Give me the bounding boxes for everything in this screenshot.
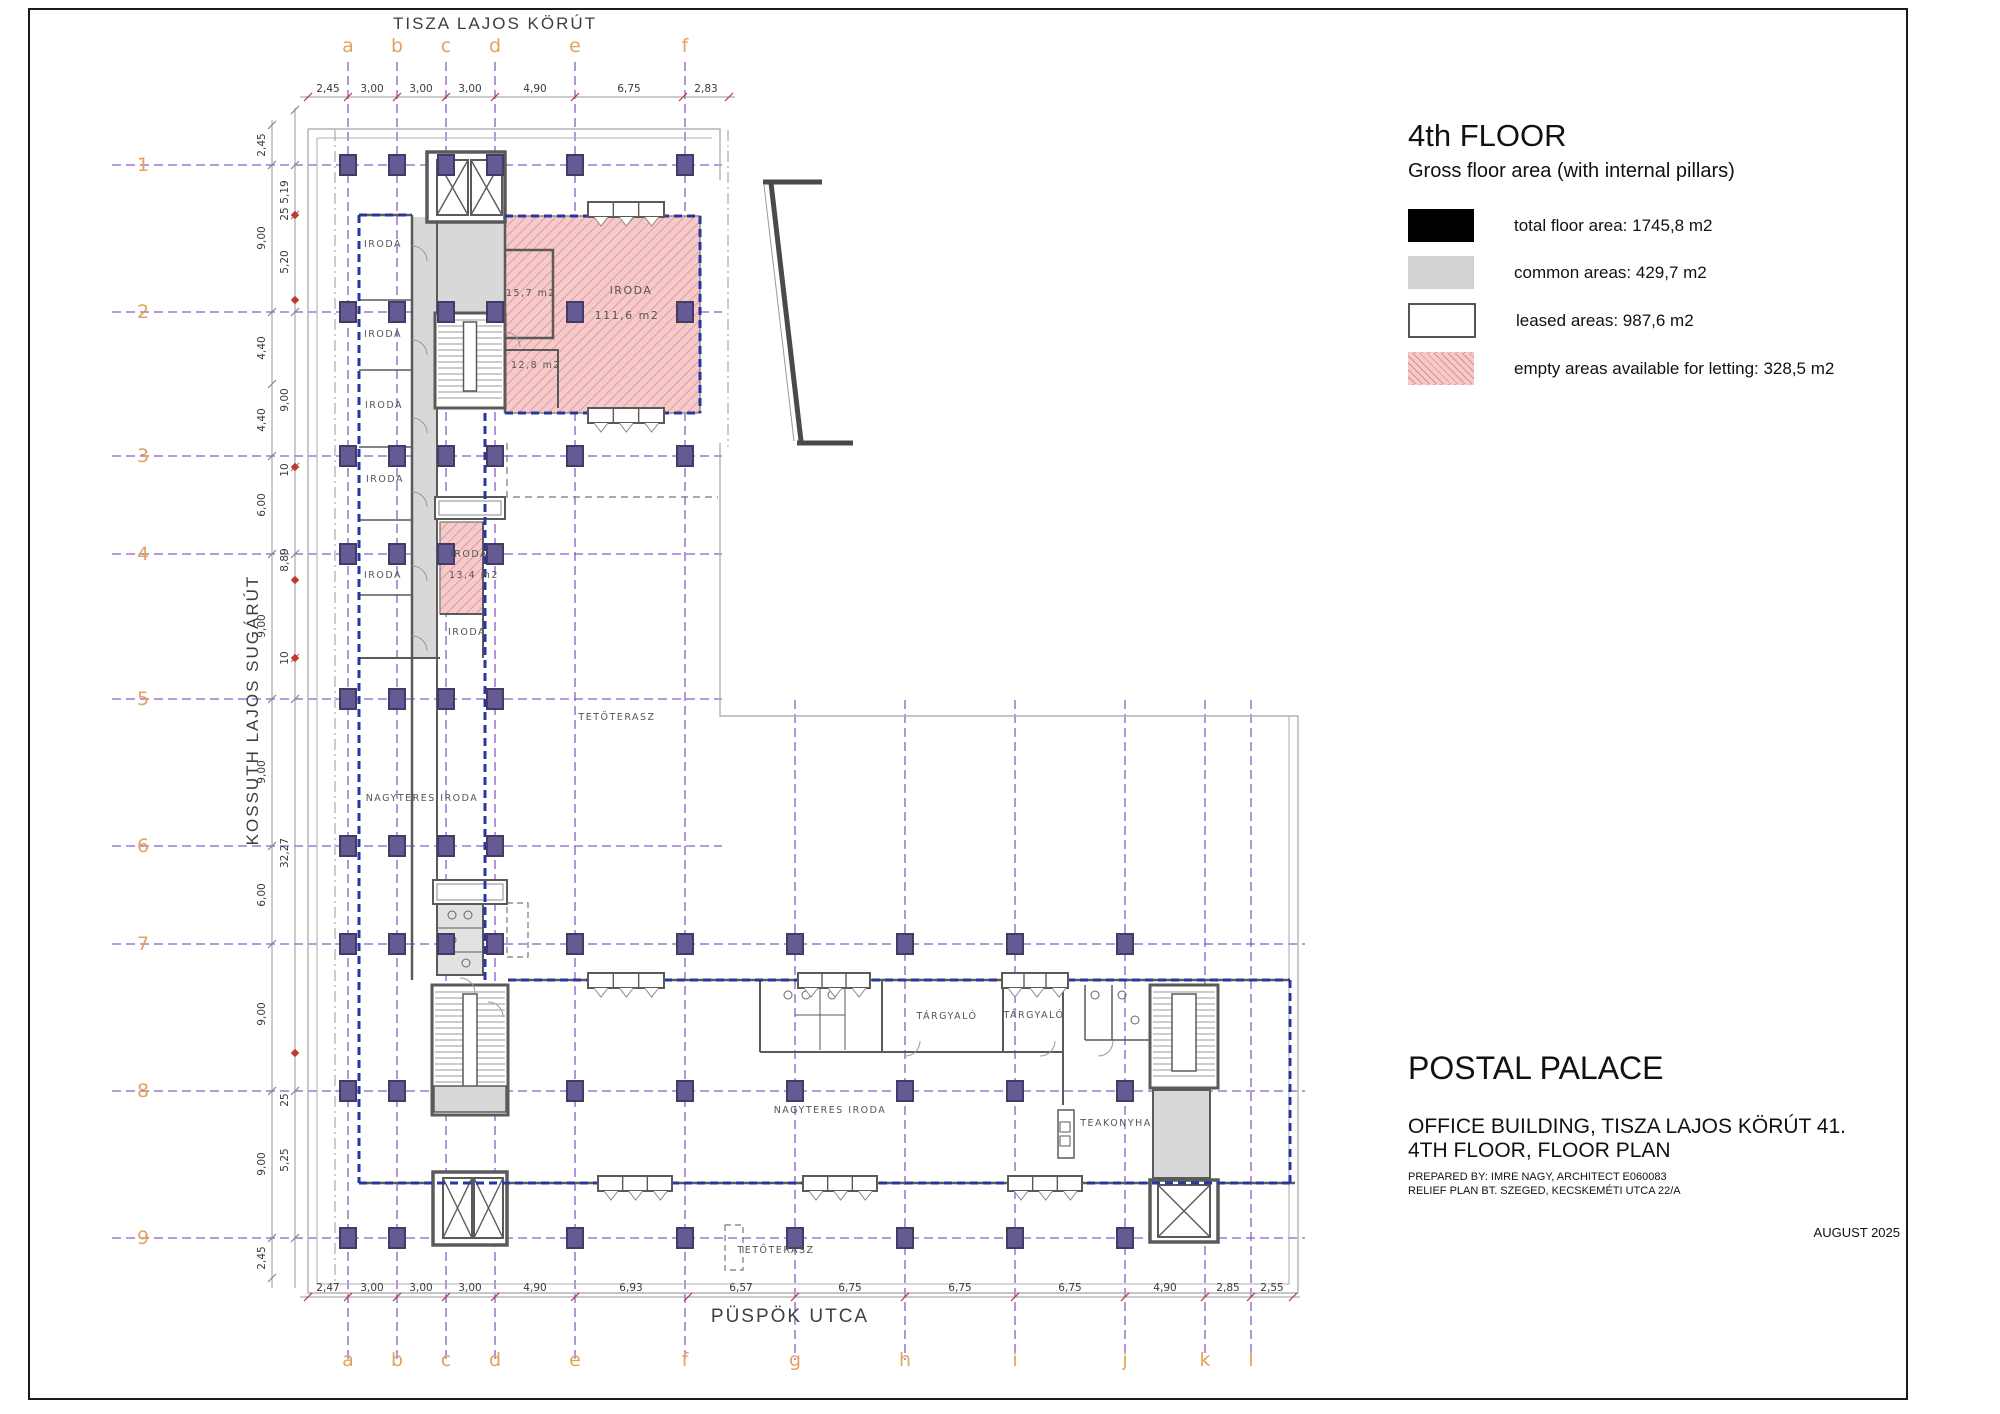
street-label-left: KOSSUTH LAJOS SUGÁRÚT: [243, 565, 263, 855]
floor-title: 4th FLOOR: [1408, 118, 1878, 154]
dimension-text: 6,75: [617, 83, 640, 95]
dimension-text: 6,75: [1058, 1282, 1081, 1294]
common-fill-corridor: [412, 313, 437, 658]
pillar-a1: [340, 155, 356, 175]
room-label: IRODA: [364, 570, 402, 581]
pillar-b2: [389, 302, 405, 322]
dimension-text: 3,00: [458, 83, 481, 95]
grid-letter-top-e: e: [569, 35, 581, 57]
red-marker: [291, 1049, 299, 1057]
room-label: 15,7 m2: [506, 288, 556, 299]
legend-swatch-empty: [1408, 352, 1474, 385]
dimension-text: 9,00: [256, 1152, 268, 1175]
dimension-text: 3,00: [360, 1282, 383, 1294]
grid-number-9: 9: [137, 1227, 149, 1249]
pillar-b4: [389, 544, 405, 564]
room-label: TETŐTERASZ: [577, 712, 655, 723]
room-label: TÁRGYALÓ: [1002, 1009, 1064, 1021]
dimension-text: 6,75: [838, 1282, 861, 1294]
legend-row-leased: leased areas: 987,6 m2: [1408, 303, 1878, 338]
grid-number-4: 4: [137, 543, 149, 565]
room-label: IRODA: [450, 549, 488, 560]
pillar-d7: [487, 934, 503, 954]
grid-letter-bottom-b: b: [391, 1349, 403, 1371]
dimension-text: 6,57: [729, 1282, 752, 1294]
pillar-g8: [787, 1081, 803, 1101]
room-label: 111,6 m2: [595, 309, 660, 322]
prepared-by: PREPARED BY: IMRE NAGY, ARCHITECT E06008…: [1408, 1171, 1888, 1183]
common-fill-lobby: [412, 217, 505, 313]
terrace-outlines: [507, 443, 743, 1270]
dimension-text: 6,00: [256, 493, 268, 516]
pillar-i9: [1007, 1228, 1023, 1248]
dimension-text: 25: [279, 207, 291, 220]
dimension-text: 5,25: [279, 1148, 291, 1171]
pillar-h7: [897, 934, 913, 954]
pillar-a4: [340, 544, 356, 564]
dimension-text: 4,90: [523, 1282, 546, 1294]
room-label: NAGYTERES IRODA: [774, 1105, 887, 1116]
legend-label-total: total floor area: 1745,8 m2: [1514, 216, 1712, 236]
legend-label-common: common areas: 429,7 m2: [1514, 263, 1707, 283]
grid-number-5: 5: [137, 688, 149, 710]
grid-number-6: 6: [137, 835, 149, 857]
street-label-bottom: PÜSPÖK UTCA: [630, 1306, 950, 1328]
pillar-h8: [897, 1081, 913, 1101]
terrace-outline-mid: [507, 903, 528, 957]
dimension-text: 2,85: [1216, 1282, 1239, 1294]
dimension-text: 2,45: [256, 1246, 268, 1269]
dimension-text: 9,00: [256, 1002, 268, 1025]
pillar-b1: [389, 155, 405, 175]
dimension-text: 4,90: [523, 83, 546, 95]
grid-letter-top-c: c: [441, 35, 451, 57]
grid-letter-top-a: a: [342, 35, 354, 57]
dimension-text: 2,83: [694, 83, 717, 95]
pillar-i8: [1007, 1081, 1023, 1101]
legend-swatch-common: [1408, 256, 1474, 289]
dimension-text: 6,93: [619, 1282, 642, 1294]
grid-letter-bottom-a: a: [342, 1349, 354, 1371]
legend-row-total: total floor area: 1745,8 m2: [1408, 209, 1878, 242]
legend-label-empty: empty areas available for letting: 328,5…: [1514, 359, 1834, 379]
grid-letter-bottom-g: g: [789, 1349, 801, 1371]
grid-letter-top-f: f: [682, 35, 690, 57]
pillar-c3: [438, 446, 454, 466]
pillar-e7: [567, 934, 583, 954]
red-marker: [291, 576, 299, 584]
dimension-text: 6,75: [948, 1282, 971, 1294]
room-label: IRODA: [448, 627, 486, 638]
legend-label-leased: leased areas: 987,6 m2: [1516, 311, 1694, 331]
legend-block: 4th FLOOR Gross floor area (with interna…: [1408, 118, 1878, 399]
pillar-i7: [1007, 934, 1023, 954]
grid-number-7: 7: [137, 933, 149, 955]
grid-letter-bottom-j: j: [1121, 1349, 1127, 1371]
legend-row-empty: empty areas available for letting: 328,5…: [1408, 352, 1878, 385]
legend-swatch-total: [1408, 209, 1474, 242]
pillar-f9: [677, 1228, 693, 1248]
grid-number-2: 2: [137, 301, 149, 323]
dimension-text: 10: [279, 651, 291, 664]
grid-letter-top-b: b: [391, 35, 403, 57]
dimension-text: 10: [279, 463, 291, 476]
pillar-a5: [340, 689, 356, 709]
drawing-sheet: 2,453,003,003,004,906,752,832,473,003,00…: [0, 0, 2000, 1414]
pillar-f1: [677, 155, 693, 175]
grid-number-3: 3: [137, 445, 149, 467]
pillar-e1: [567, 155, 583, 175]
room-label: TETŐTERASZ: [736, 1245, 814, 1256]
project-line2: 4TH FLOOR, FLOOR PLAN: [1408, 1139, 1888, 1163]
room-label: TEAKONYHA: [1079, 1118, 1152, 1129]
project-name: POSTAL PALACE: [1408, 1050, 1888, 1087]
pillar-h9: [897, 1228, 913, 1248]
dimension-text: 25: [279, 1093, 291, 1106]
pillar-e8: [567, 1081, 583, 1101]
pillar-c6: [438, 836, 454, 856]
dimension-text: 2,55: [1260, 1282, 1283, 1294]
grid-letter-bottom-d: d: [489, 1349, 501, 1371]
pillar-c5: [438, 689, 454, 709]
pillar-b6: [389, 836, 405, 856]
pillar-c1: [438, 155, 454, 175]
pillar-f2: [677, 302, 693, 322]
dimension-text: 2,45: [316, 83, 339, 95]
red-marker: [291, 296, 299, 304]
legend-swatch-leased: [1408, 303, 1476, 338]
pillar-g7: [787, 934, 803, 954]
pillar-j8: [1117, 1081, 1133, 1101]
empty-area-small: [440, 522, 483, 614]
legend-row-common: common areas: 429,7 m2: [1408, 256, 1878, 289]
room-label: 13,4 m2: [449, 570, 499, 581]
grid-letter-bottom-f: f: [682, 1349, 690, 1371]
grid-letter-bottom-e: e: [569, 1349, 581, 1371]
pillar-j9: [1117, 1228, 1133, 1248]
room-label: IRODA: [610, 284, 653, 297]
grid-letter-bottom-i: i: [1012, 1349, 1017, 1371]
dimension-text: 9,00: [279, 388, 291, 411]
dimension-text: 3,00: [409, 1282, 432, 1294]
grid-letter-bottom-k: k: [1199, 1349, 1210, 1371]
grid-letter-bottom-h: h: [899, 1349, 911, 1371]
pillar-f8: [677, 1081, 693, 1101]
pillar-f3: [677, 446, 693, 466]
dimension-text: 3,00: [409, 83, 432, 95]
dimension-text: 4,40: [256, 408, 268, 431]
room-label: IRODA: [366, 474, 404, 485]
grid-letter-bottom-c: c: [441, 1349, 451, 1371]
dimension-text: 3,00: [458, 1282, 481, 1294]
pillar-a8: [340, 1081, 356, 1101]
pillar-b8: [389, 1081, 405, 1101]
pillar-d4: [487, 544, 503, 564]
grid-letter-top-d: d: [489, 35, 501, 57]
dimension-text: 8,89: [279, 548, 291, 571]
dimension-text: 2,45: [256, 133, 268, 156]
pillar-d1: [487, 155, 503, 175]
room-label: IRODA: [365, 400, 403, 411]
date-label: AUGUST 2025: [1700, 1225, 1900, 1240]
pillar-e3: [567, 446, 583, 466]
dimension-text: 5,19: [279, 180, 291, 203]
dimension-text: 4,40: [256, 336, 268, 359]
project-line1: OFFICE BUILDING, TISZA LAJOS KÖRÚT 41.: [1408, 1115, 1888, 1139]
pillar-b9: [389, 1228, 405, 1248]
pillar-a7: [340, 934, 356, 954]
common-fill-shaft: [1153, 1090, 1210, 1178]
pillar-d2: [487, 302, 503, 322]
pillar-c7: [438, 934, 454, 954]
dimension-text: 3,00: [360, 83, 383, 95]
pillar-a9: [340, 1228, 356, 1248]
room-label: IRODA: [364, 239, 402, 250]
dimension-text: 9,00: [256, 226, 268, 249]
pillar-e9: [567, 1228, 583, 1248]
dimension-text: 32,27: [279, 838, 291, 868]
floor-subtitle: Gross floor area (with internal pillars): [1408, 160, 1878, 183]
grid-number-1: 1: [137, 154, 149, 176]
relief-plan: RELIEF PLAN BT. SZEGED, KECSKEMÉTI UTCA …: [1408, 1185, 1888, 1197]
pillar-d6: [487, 836, 503, 856]
room-label: NAGYTERES IRODA: [366, 793, 479, 804]
dimension-text: 6,00: [256, 883, 268, 906]
neighbour-wall: [763, 182, 853, 443]
street-label-top: TISZA LAJOS KÖRÚT: [330, 14, 660, 34]
grid-letter-bottom-l: l: [1248, 1349, 1253, 1371]
pillar-f7: [677, 934, 693, 954]
pillar-b5: [389, 689, 405, 709]
pillar-a3: [340, 446, 356, 466]
project-title-block: POSTAL PALACE OFFICE BUILDING, TISZA LAJ…: [1408, 1050, 1888, 1197]
pillar-a2: [340, 302, 356, 322]
room-label: 12,8 m2: [511, 360, 561, 371]
pillar-b3: [389, 446, 405, 466]
room-label: IRODA: [364, 329, 402, 340]
dimension-text: 4,90: [1153, 1282, 1176, 1294]
pillar-d5: [487, 689, 503, 709]
pillar-j7: [1117, 934, 1133, 954]
pillar-b7: [389, 934, 405, 954]
grid-number-8: 8: [137, 1080, 149, 1102]
dimension-text: 2,47: [316, 1282, 339, 1294]
pillar-d3: [487, 446, 503, 466]
dimension-text: 5,20: [279, 250, 291, 273]
pillar-a6: [340, 836, 356, 856]
pillar-c2: [438, 302, 454, 322]
pillar-e2: [567, 302, 583, 322]
room-label: TÁRGYALÓ: [915, 1010, 977, 1022]
